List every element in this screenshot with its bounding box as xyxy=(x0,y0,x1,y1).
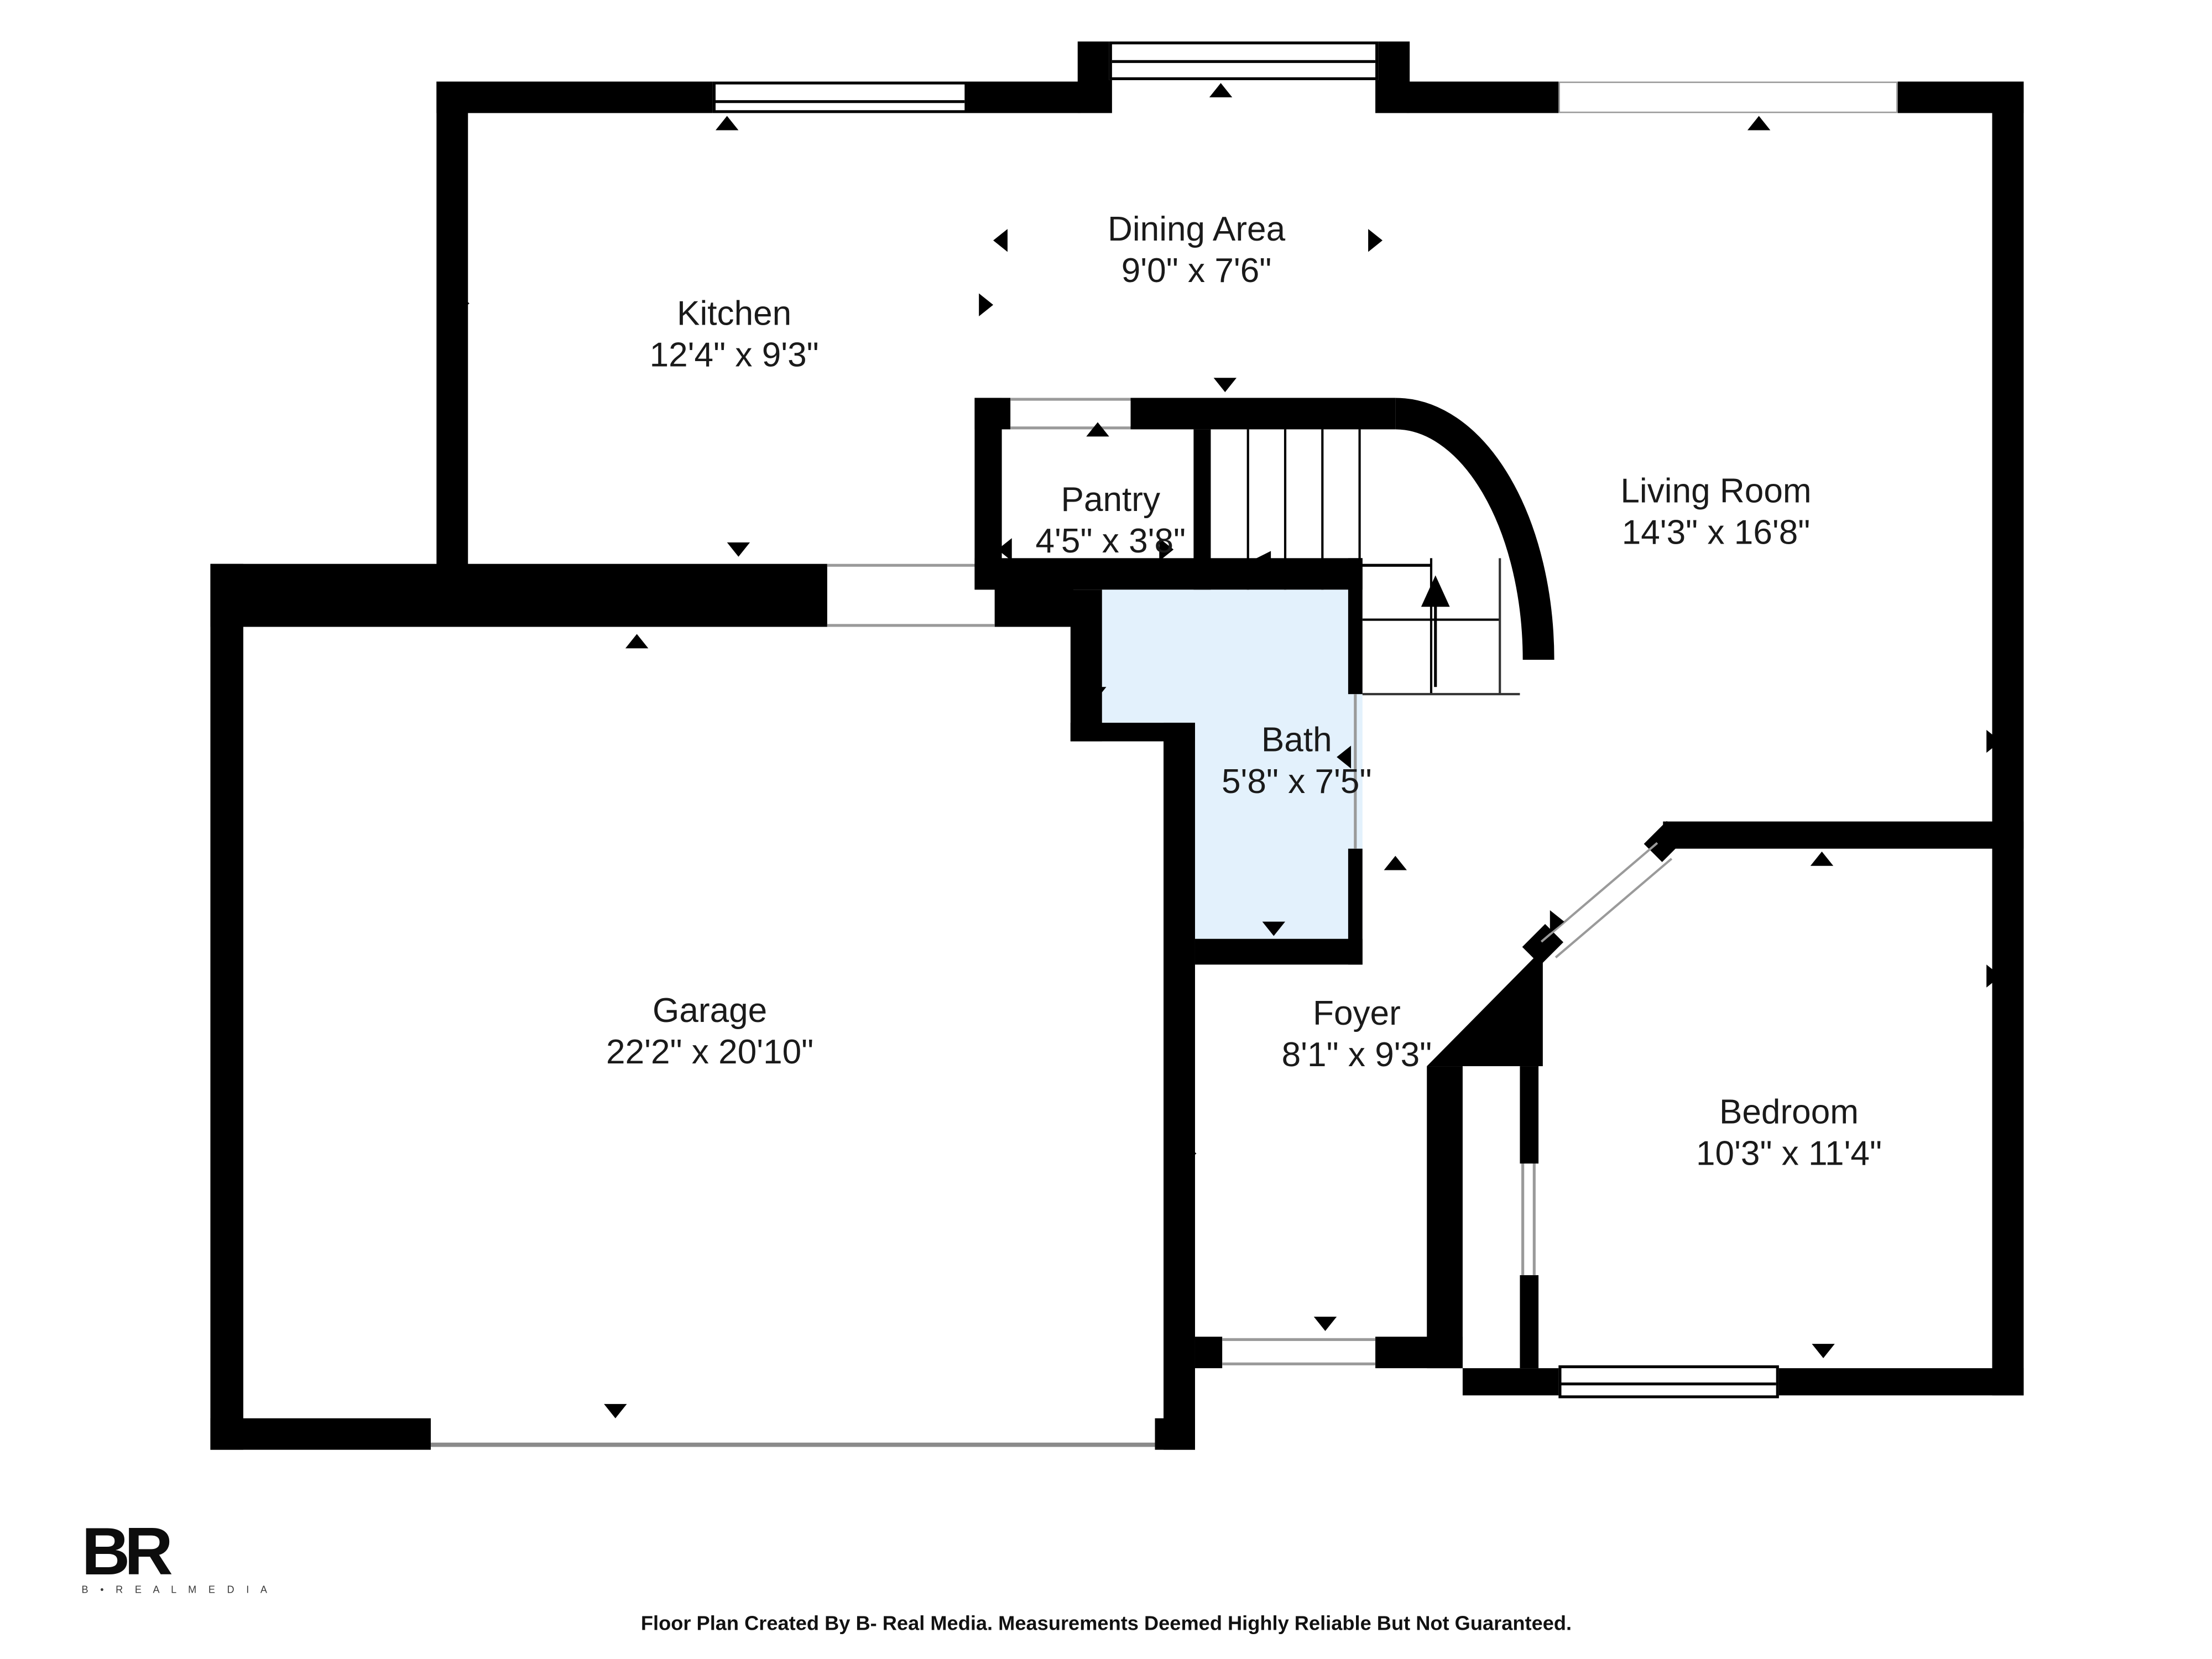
b-real-media-logo: BR B • R E A L M E D I A xyxy=(82,1520,272,1595)
garage-top-wall xyxy=(210,564,827,627)
front-door-threshold-line xyxy=(1222,1363,1375,1365)
room-label-foyer: Foyer 8'1" x 9'3" xyxy=(1282,993,1432,1076)
garage-foyer-dividing-wall xyxy=(1164,723,1195,1450)
room-dims: 22'2" x 20'10" xyxy=(606,1032,813,1073)
measure-arrow xyxy=(1986,730,2001,753)
wall-left-upper xyxy=(436,82,468,590)
pantry-opening-line xyxy=(1010,426,1130,429)
measure-arrow xyxy=(1262,922,1285,936)
room-name: Dining Area xyxy=(1108,209,1285,251)
measure-arrow xyxy=(1209,83,1232,97)
garage-left-wall xyxy=(210,564,243,1450)
measure-arrow xyxy=(1083,687,1106,701)
room-name: Garage xyxy=(606,990,813,1032)
room-dims: 12'4" x 9'3" xyxy=(650,335,819,377)
room-name: Living Room xyxy=(1620,471,1811,512)
room-dims: 4'5" x 3'8" xyxy=(1035,521,1186,562)
room-name: Bath xyxy=(1222,720,1372,761)
angled-door-line xyxy=(1556,859,1672,958)
measure-arrow xyxy=(716,116,738,131)
window-sash xyxy=(1562,1383,1776,1385)
measure-arrow xyxy=(625,634,648,648)
room-dims: 5'8" x 7'5" xyxy=(1222,761,1372,803)
closet-door-line xyxy=(1521,1164,1524,1275)
measure-arrow xyxy=(455,292,469,315)
pantry-opening-line xyxy=(1010,398,1130,400)
measure-arrow xyxy=(1747,116,1770,131)
room-label-dining: Dining Area 9'0" x 7'6" xyxy=(1108,209,1285,292)
kitchen-garage-opening-line xyxy=(827,624,995,627)
measure-arrow xyxy=(1550,910,1564,933)
front-door-threshold-line xyxy=(1222,1338,1375,1341)
closet-door-line xyxy=(1533,1164,1536,1275)
room-dims: 9'0" x 7'6" xyxy=(1108,251,1285,292)
room-label-living: Living Room 14'3" x 16'8" xyxy=(1620,471,1811,554)
wall-bay-left-stub xyxy=(1078,41,1112,113)
measure-arrow xyxy=(1214,378,1237,392)
room-dims: 8'1" x 9'3" xyxy=(1282,1035,1432,1076)
bath-floor xyxy=(1102,589,1363,741)
measure-arrow xyxy=(1314,1317,1337,1331)
garage-bottom-wall-left xyxy=(210,1418,431,1450)
measure-arrow xyxy=(1368,229,1383,252)
measure-arrow xyxy=(1812,1344,1834,1358)
logo-subtext: B • R E A L M E D I A xyxy=(82,1586,272,1596)
measure-arrow xyxy=(229,884,243,907)
dining-bay-window xyxy=(1109,41,1379,80)
wall-top-mid xyxy=(1407,82,1562,113)
footer-disclaimer: Floor Plan Created By B- Real Media. Mea… xyxy=(0,1611,2212,1634)
bath-bottom-wall xyxy=(1195,939,1363,965)
measure-arrow xyxy=(1182,1142,1197,1165)
foyer-right-wall xyxy=(1427,1066,1463,1368)
measure-arrow xyxy=(229,1193,243,1216)
room-label-garage: Garage 22'2" x 20'10" xyxy=(606,990,813,1073)
measure-arrow xyxy=(993,229,1008,252)
measure-arrow xyxy=(998,538,1012,561)
measure-arrow xyxy=(727,542,750,557)
measure-arrow xyxy=(979,294,993,316)
stairs-top-wall xyxy=(1131,398,1396,429)
kitchen-garage-opening-line xyxy=(827,564,995,567)
kitchen-window xyxy=(713,82,968,113)
room-label-bath: Bath 5'8" x 7'5" xyxy=(1222,720,1372,803)
room-name: Pantry xyxy=(1035,479,1186,521)
pantry-top-stub xyxy=(974,398,1010,429)
bath-left-wall xyxy=(1071,589,1102,741)
measure-arrow xyxy=(1384,856,1407,870)
wall-bay-right-stub xyxy=(1375,41,1410,113)
window-sash xyxy=(716,100,964,102)
room-dims: 10'3" x 11'4" xyxy=(1696,1134,1882,1175)
room-name: Kitchen xyxy=(650,294,819,335)
room-label-pantry: Pantry 4'5" x 3'8" xyxy=(1035,479,1186,562)
stairs-curved-wall xyxy=(1395,414,1538,660)
living-room-window xyxy=(1558,82,1897,113)
bedroom-top-wall xyxy=(1663,822,2023,849)
logo-mark: BR xyxy=(82,1520,272,1583)
closet-wall-upper xyxy=(1520,1066,1538,1164)
measure-arrow xyxy=(1986,964,2001,987)
room-dims: 14'3" x 16'8" xyxy=(1620,513,1811,554)
measure-arrow xyxy=(1811,852,1833,866)
stair-up-arrow xyxy=(1421,575,1450,607)
bedroom-window xyxy=(1558,1365,1779,1399)
window-sash xyxy=(1112,60,1375,62)
measure-arrow xyxy=(604,1404,627,1418)
closet-wall-lower xyxy=(1520,1275,1538,1368)
foyer-bottom-left-stub xyxy=(1195,1337,1222,1368)
garage-door-line xyxy=(431,1443,1155,1447)
angled-door-stub xyxy=(1531,933,1554,956)
room-label-bedroom: Bedroom 10'3" x 11'4" xyxy=(1696,1092,1882,1175)
floor-plan: Dining Area 9'0" x 7'6" Kitchen 12'4" x … xyxy=(0,0,2212,1658)
measure-arrow xyxy=(1086,422,1109,436)
angled-corner-wall xyxy=(1427,949,1543,1066)
bath-right-wall-upper xyxy=(1348,558,1363,694)
floor-plan-page: Dining Area 9'0" x 7'6" Kitchen 12'4" x … xyxy=(0,0,2212,1659)
room-name: Foyer xyxy=(1282,993,1432,1035)
room-label-kitchen: Kitchen 12'4" x 9'3" xyxy=(650,294,819,377)
room-name: Bedroom xyxy=(1696,1092,1882,1134)
pantry-bath-top-wall xyxy=(974,558,1362,589)
